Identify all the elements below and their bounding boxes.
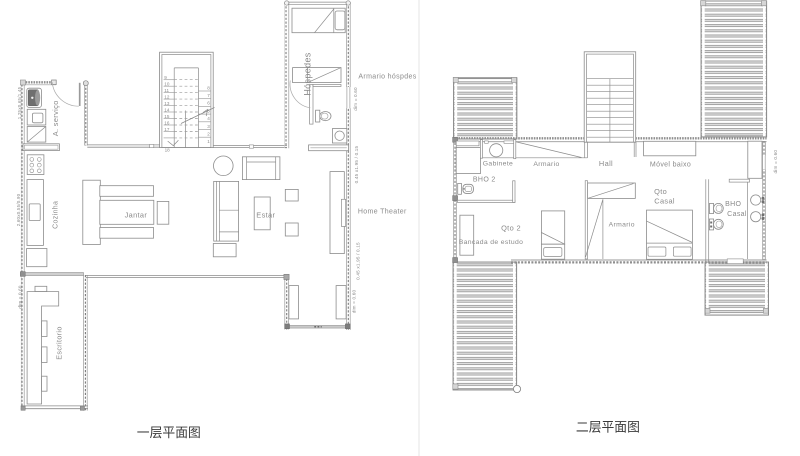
svg-text:dim = 0.60: dim = 0.60: [353, 87, 358, 111]
svg-text:Jantar: Jantar: [125, 210, 148, 219]
svg-text:Armario: Armario: [609, 221, 635, 228]
svg-text:Estar: Estar: [256, 211, 275, 220]
svg-text:dim = 0.60: dim = 0.60: [17, 285, 22, 308]
svg-text:BHO: BHO: [725, 201, 741, 208]
svg-text:Qto: Qto: [654, 187, 667, 196]
svg-text:Qto 2: Qto 2: [501, 223, 521, 232]
svg-text:BHO 2: BHO 2: [473, 176, 496, 183]
svg-text:13: 13: [164, 101, 170, 106]
svg-text:Cozinha: Cozinha: [53, 201, 60, 229]
svg-text:Bancada de estudo: Bancada de estudo: [459, 239, 524, 246]
svg-text:Armario: Armario: [533, 161, 559, 168]
svg-text:8: 8: [207, 85, 210, 90]
svg-text:1: 1: [207, 139, 210, 144]
svg-text:2.60x0.55/0.90: 2.60x0.55/0.90: [16, 193, 21, 226]
svg-text:4: 4: [207, 116, 210, 121]
svg-text:3: 3: [207, 124, 210, 129]
svg-text:二层平面图: 二层平面图: [576, 419, 640, 434]
svg-text:6: 6: [207, 101, 210, 106]
svg-text:Móvel baixo: Móvel baixo: [650, 161, 691, 168]
svg-text:0.45 x1.95 / 0.15: 0.45 x1.95 / 0.15: [354, 145, 359, 183]
svg-text:Home Theater: Home Theater: [358, 209, 407, 216]
svg-text:一层平面图: 一层平面图: [137, 425, 201, 440]
svg-text:Casal: Casal: [727, 211, 747, 218]
svg-text:Armario hóspdes: Armario hóspdes: [358, 74, 416, 81]
svg-text:A. serviço: A. serviço: [51, 100, 60, 136]
svg-text:Hóspedes: Hóspedes: [303, 52, 313, 95]
svg-text:10: 10: [164, 82, 170, 87]
svg-text:1.25x0.65/1.45: 1.25x0.65/1.45: [17, 86, 22, 119]
svg-text:dim = 0.60: dim = 0.60: [773, 150, 778, 174]
svg-text:17: 17: [164, 127, 170, 132]
svg-text:2: 2: [207, 132, 210, 137]
svg-text:Casal: Casal: [654, 196, 675, 205]
svg-text:14: 14: [164, 107, 170, 112]
svg-text:18: 18: [165, 148, 171, 153]
svg-text:dim = 0.60: dim = 0.60: [351, 289, 356, 313]
svg-text:15: 15: [164, 114, 170, 119]
svg-text:7: 7: [207, 93, 210, 98]
svg-text:Hall: Hall: [599, 159, 613, 168]
svg-text:0.45 x1.95 / 0.15: 0.45 x1.95 / 0.15: [356, 242, 361, 280]
svg-text:Escritorio: Escritorio: [54, 326, 63, 359]
svg-text:11: 11: [164, 88, 169, 93]
svg-text:16: 16: [164, 120, 170, 125]
svg-text:12: 12: [164, 94, 170, 99]
svg-text:9: 9: [164, 75, 167, 80]
svg-text:Gabinete: Gabinete: [483, 161, 513, 168]
